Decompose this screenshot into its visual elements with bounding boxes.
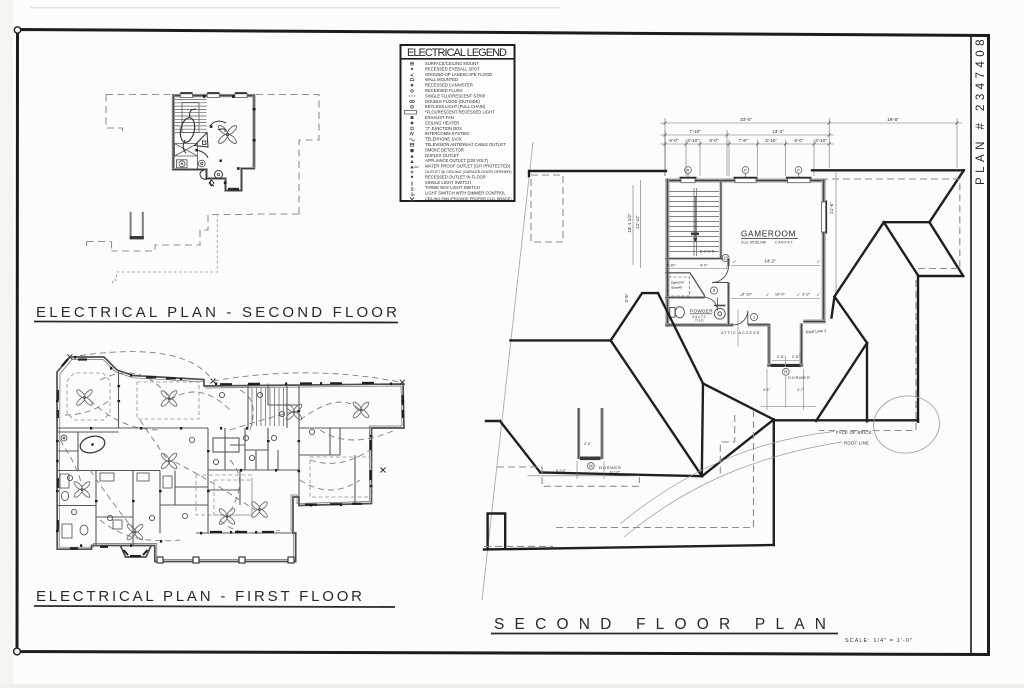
svg-text:10'-0": 10'-0" bbox=[775, 292, 786, 297]
svg-text:FACE OF BRICK,: FACE OF BRICK, bbox=[836, 430, 873, 435]
svg-text:3'-10": 3'-10" bbox=[742, 292, 753, 297]
svg-text:INTERCOMM SYSTEM: INTERCOMM SYSTEM bbox=[425, 131, 469, 136]
svg-text:GFI: GFI bbox=[414, 165, 419, 169]
svg-text:"J" JUNCTION BOX: "J" JUNCTION BOX bbox=[425, 126, 462, 131]
svg-text:ELECTRICAL LEGEND: ELECTRICAL LEGEND bbox=[407, 47, 507, 59]
svg-text:CARPET: CARPET bbox=[775, 241, 794, 245]
svg-text:R: R bbox=[687, 168, 690, 173]
svg-text:13'-2": 13'-2" bbox=[772, 129, 784, 134]
svg-text:DORMER: DORMER bbox=[599, 465, 622, 470]
svg-text:WALL MOUNTED: WALL MOUNTED bbox=[425, 77, 458, 82]
svg-text:SCALE: 1/4" = 1'-0": SCALE: 1/4" = 1'-0" bbox=[845, 638, 913, 644]
svg-text:SINGLE FLUORESCENT STRIP: SINGLE FLUORESCENT STRIP bbox=[425, 93, 486, 98]
svg-text:R: R bbox=[784, 369, 787, 374]
svg-text:P: P bbox=[797, 168, 800, 173]
svg-text:CEILING FAN (PROVIDE PROPER CL: CEILING FAN (PROVIDE PROPER CLG. BRACE) bbox=[425, 197, 512, 201]
svg-text:3'-10": 3'-10" bbox=[765, 138, 777, 143]
svg-text:WATER PROOF OUTLET (GFI PROTEC: WATER PROOF OUTLET (GFI PROTECTED) bbox=[425, 164, 511, 169]
svg-text:13: 13 bbox=[723, 256, 728, 261]
svg-text:8'-0": 8'-0" bbox=[794, 138, 804, 143]
svg-text:3'-6": 3'-6" bbox=[624, 293, 629, 303]
svg-text:6'-1/2": 6'-1/2" bbox=[610, 471, 621, 475]
svg-text:SECOND FLOOR PLAN: SECOND FLOOR PLAN bbox=[494, 616, 826, 633]
svg-text:DORMER: DORMER bbox=[788, 375, 811, 380]
svg-text:M: M bbox=[589, 463, 593, 468]
svg-text:7'-8": 7'-8" bbox=[738, 138, 748, 143]
svg-text:TILE: TILE bbox=[695, 319, 704, 323]
svg-text:D: D bbox=[413, 193, 415, 197]
svg-text:12'-11": 12'-11" bbox=[635, 215, 640, 229]
svg-text:POWDER: POWDER bbox=[690, 309, 713, 314]
svg-text:ATTIC ACCESS: ATTIC ACCESS bbox=[721, 331, 760, 335]
svg-text:SINGLE LIGHT SWITCH: SINGLE LIGHT SWITCH bbox=[425, 180, 471, 185]
svg-text:DOWN: DOWN bbox=[700, 250, 715, 254]
svg-text:14'-2": 14'-2" bbox=[764, 259, 776, 264]
svg-text:P: P bbox=[744, 168, 747, 173]
svg-text:GROUND-UP LANDSCAPE FLOOD: GROUND-UP LANDSCAPE FLOOD bbox=[425, 72, 492, 77]
svg-text:RECESSED FLUSH: RECESSED FLUSH bbox=[425, 88, 463, 93]
svg-text:SMOKE DETECTOR: SMOKE DETECTOR bbox=[425, 147, 464, 152]
svg-text:*FLOURESCENT RECESSED LIGHT: *FLOURESCENT RECESSED LIGHT bbox=[425, 110, 495, 115]
svg-text:GAMEROOM: GAMEROOM bbox=[741, 230, 798, 239]
svg-text:LIGHT SWITCH WITH DIMMER CONTR: LIGHT SWITCH WITH DIMMER CONTROL bbox=[425, 191, 506, 196]
svg-text:7'-10": 7'-10" bbox=[689, 129, 701, 134]
svg-text:21'-6": 21'-6" bbox=[829, 202, 834, 214]
svg-text:OUTLET @ CEILING (GARAGE DOOR: OUTLET @ CEILING (GARAGE DOOR OPENER) bbox=[425, 170, 512, 174]
svg-text:2'-6": 2'-6" bbox=[792, 355, 800, 359]
svg-text:DUPLEX OUTLET: DUPLEX OUTLET bbox=[425, 153, 460, 158]
svg-text:APPLIANCE OUTLET (220 VOLT): APPLIANCE OUTLET (220 VOLT) bbox=[425, 158, 489, 163]
svg-text:THREE WAY LIGHT SWITCH: THREE WAY LIGHT SWITCH bbox=[425, 185, 480, 190]
svg-text:8'-0": 8'-0" bbox=[709, 138, 719, 143]
svg-text:6'-1/2": 6'-1/2" bbox=[556, 469, 567, 473]
svg-text:SURFACE/CEILING MOUNT: SURFACE/CEILING MOUNT bbox=[425, 61, 479, 66]
svg-text:TELEVISION ANTENNA/J CABLE OUT: TELEVISION ANTENNA/J CABLE OUTLET bbox=[425, 142, 506, 147]
svg-text:4'-0": 4'-0" bbox=[700, 264, 708, 268]
svg-text:3'-10": 3'-10" bbox=[687, 138, 699, 143]
svg-text:TELEPHONE JACK: TELEPHONE JACK bbox=[425, 137, 462, 142]
svg-text:CLG: 9'0 B'LOW: CLG: 9'0 B'LOW bbox=[741, 241, 767, 245]
svg-text:KEYLESS LIGHT (PULL CHAIN): KEYLESS LIGHT (PULL CHAIN) bbox=[425, 104, 486, 109]
svg-text:4'-7": 4'-7" bbox=[797, 388, 805, 392]
svg-text:3'-2": 3'-2" bbox=[802, 292, 811, 297]
svg-text:ROOF LINE: ROOF LINE bbox=[844, 441, 869, 446]
svg-text:2'-6": 2'-6" bbox=[777, 355, 785, 359]
svg-text:33'-0": 33'-0" bbox=[740, 117, 752, 122]
svg-text:18'-1 1/2": 18'-1 1/2" bbox=[627, 213, 632, 233]
svg-text:RECESSED OUTLET IN FLOOR: RECESSED OUTLET IN FLOOR bbox=[425, 174, 486, 179]
svg-text:RECESSED CANNISTER: RECESSED CANNISTER bbox=[425, 83, 473, 88]
svg-text:2'-0": 2'-0" bbox=[584, 442, 592, 446]
svg-text:EXHAUST FAN: EXHAUST FAN bbox=[425, 115, 454, 120]
svg-text:DOUBLE FLOOD (OUTSIDE): DOUBLE FLOOD (OUTSIDE) bbox=[425, 99, 480, 104]
svg-text:6'-0": 6'-0" bbox=[669, 138, 679, 143]
svg-text:19'-8": 19'-8" bbox=[887, 117, 899, 122]
svg-text:RECESSED EYEBALL SPOT: RECESSED EYEBALL SPOT bbox=[425, 66, 480, 71]
svg-text:PLAN # 2347408: PLAN # 2347408 bbox=[975, 37, 987, 185]
svg-text:CEILING HEATER: CEILING HEATER bbox=[425, 120, 459, 125]
svg-text:3'-10": 3'-10" bbox=[815, 138, 827, 143]
svg-text:4'-1": 4'-1" bbox=[763, 388, 771, 392]
